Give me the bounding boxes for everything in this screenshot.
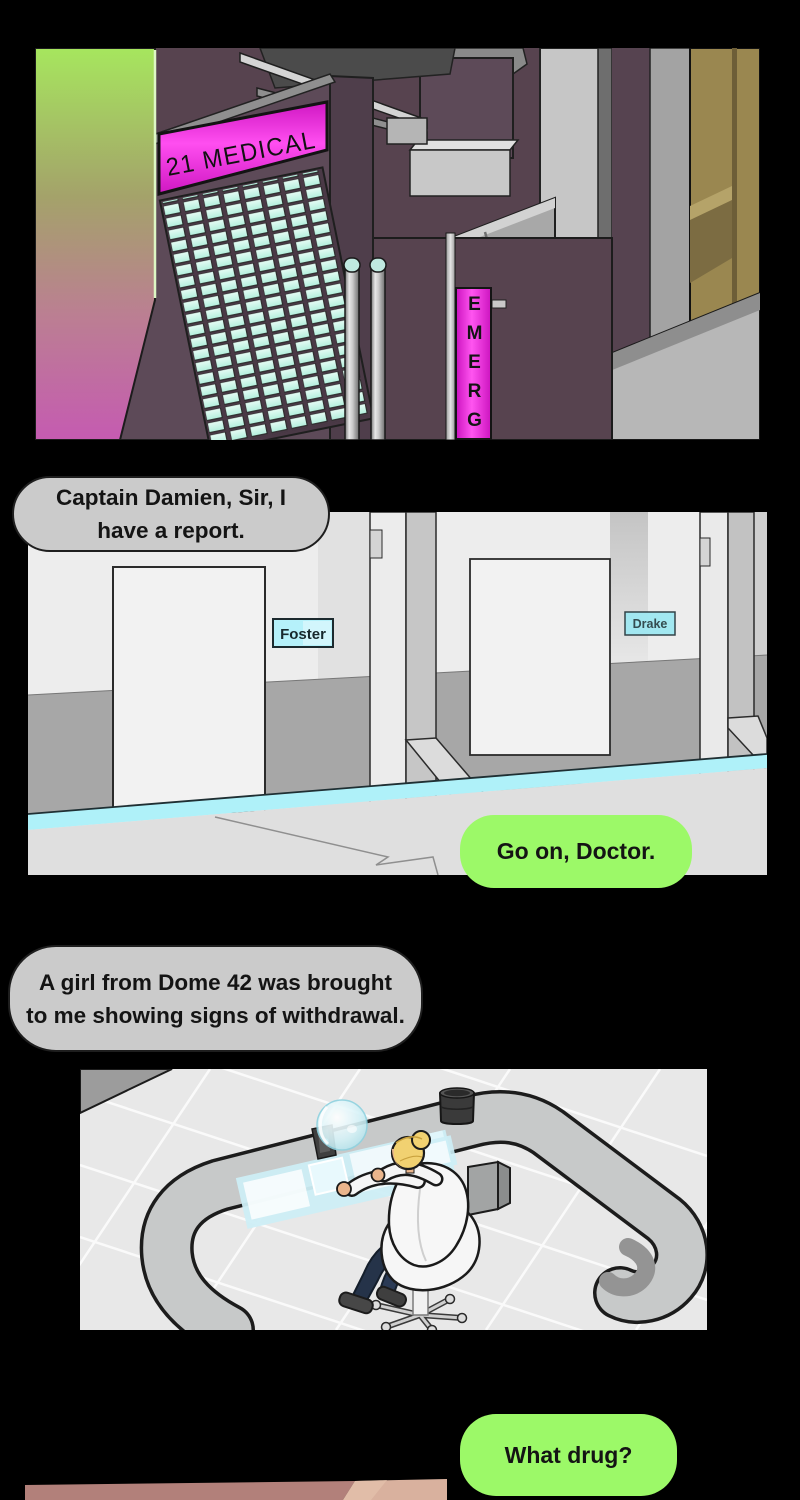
under-desk-box bbox=[468, 1162, 510, 1215]
speech-line: to me showing signs of withdrawal. bbox=[26, 999, 405, 1032]
skin-shade-dark bbox=[25, 1481, 355, 1500]
closeup-scene bbox=[25, 1478, 447, 1500]
door-label-foster: Foster bbox=[273, 619, 333, 647]
webtoon-page: 21 MEDICAL EMERG Captain Damien, Sir, I … bbox=[0, 0, 800, 1500]
hand bbox=[372, 1169, 385, 1182]
speech-bubble-girl: A girl from Dome 42 was brought to me sh… bbox=[8, 945, 423, 1052]
hair-bun bbox=[412, 1131, 430, 1149]
panel-office bbox=[80, 1069, 707, 1330]
speech-line: Go on, Doctor. bbox=[497, 835, 655, 868]
speech-line: have a report. bbox=[97, 514, 245, 547]
trash-can bbox=[440, 1088, 474, 1124]
door-foster bbox=[113, 567, 265, 812]
speech-bubble-report: Captain Damien, Sir, I have a report. bbox=[12, 476, 330, 552]
panel-city: 21 MEDICAL bbox=[35, 48, 760, 440]
panel-closeup bbox=[25, 1478, 447, 1500]
door-drake bbox=[470, 559, 610, 755]
door-label-drake-text: Drake bbox=[633, 617, 668, 631]
speech-bubble-go-on: Go on, Doctor. bbox=[460, 815, 692, 888]
speech-line: Captain Damien, Sir, I bbox=[56, 481, 286, 514]
hand bbox=[337, 1182, 351, 1196]
door-label-drake: Drake bbox=[625, 612, 675, 635]
door-label-foster-text: Foster bbox=[280, 626, 326, 643]
speech-line: What drug? bbox=[505, 1439, 633, 1472]
speech-bubble-what-drug: What drug? bbox=[460, 1414, 677, 1496]
emergency-sign: EMERG bbox=[455, 287, 492, 440]
city-scene: 21 MEDICAL bbox=[35, 48, 760, 440]
office-scene bbox=[80, 1069, 707, 1330]
speech-line: A girl from Dome 42 was brought bbox=[39, 966, 392, 999]
